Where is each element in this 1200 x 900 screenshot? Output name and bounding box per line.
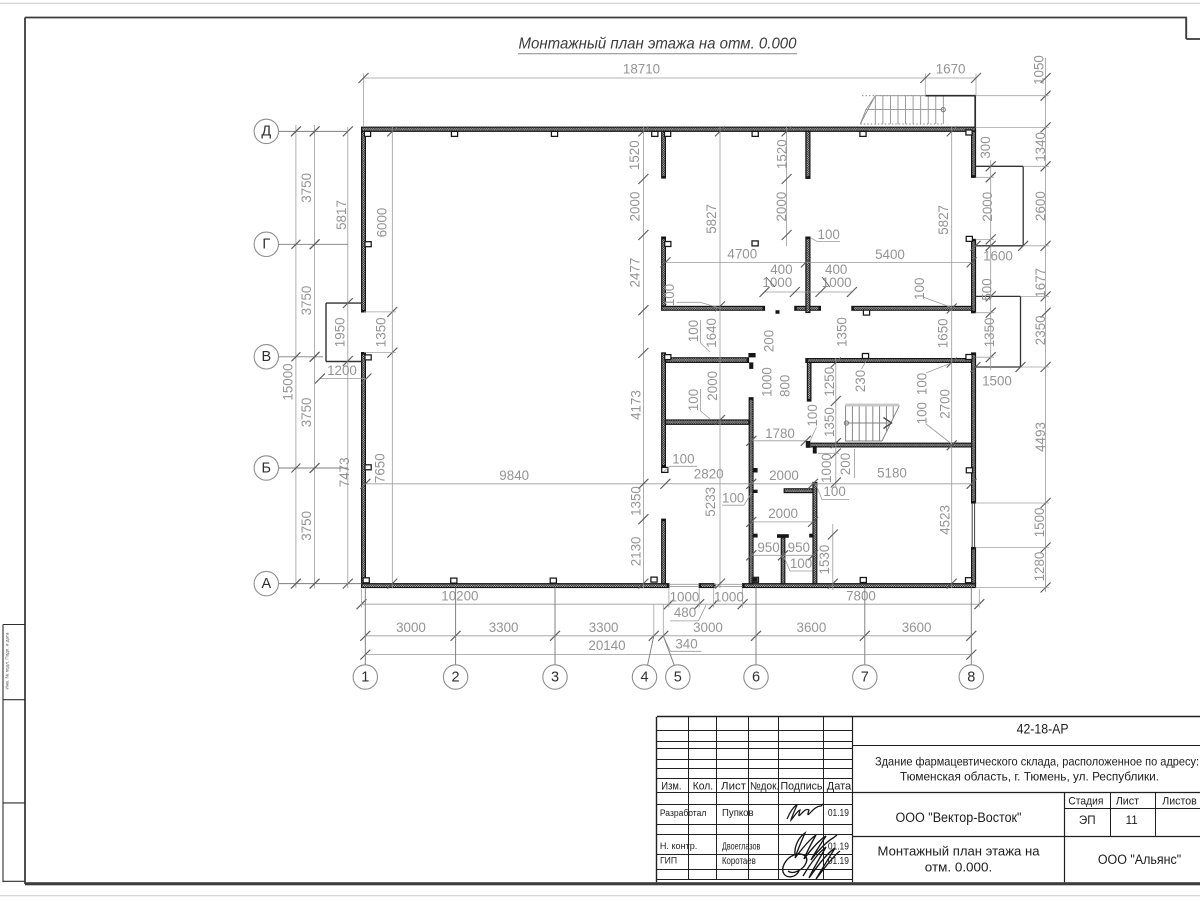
svg-text:5817: 5817 — [334, 200, 349, 230]
svg-text:3750: 3750 — [299, 511, 314, 541]
svg-text:01.19: 01.19 — [828, 856, 849, 867]
svg-text:100: 100 — [915, 373, 930, 395]
svg-text:42-18-АР: 42-18-АР — [1017, 722, 1069, 737]
svg-text:3750: 3750 — [299, 286, 314, 316]
svg-text:5827: 5827 — [704, 204, 719, 234]
svg-text:4493: 4493 — [1033, 422, 1048, 452]
svg-text:3300: 3300 — [589, 620, 619, 635]
svg-text:15000: 15000 — [280, 363, 295, 400]
svg-text:01.19: 01.19 — [828, 808, 849, 819]
svg-text:2000: 2000 — [980, 192, 995, 222]
svg-text:Подпись: Подпись — [781, 781, 823, 793]
svg-text:Листов: Листов — [1162, 795, 1197, 807]
svg-text:3600: 3600 — [902, 620, 932, 635]
svg-text:100: 100 — [790, 556, 812, 571]
svg-text:Разработал: Разработал — [660, 808, 706, 819]
svg-text:1677: 1677 — [1033, 268, 1048, 298]
svg-text:№док.: №док. — [750, 781, 779, 793]
svg-text:Коротаев: Коротаев — [722, 856, 756, 867]
svg-text:1280: 1280 — [1032, 552, 1047, 582]
svg-text:1000: 1000 — [762, 275, 792, 290]
svg-text:11: 11 — [1126, 814, 1138, 827]
svg-text:300: 300 — [978, 136, 993, 158]
svg-text:100: 100 — [686, 320, 701, 342]
svg-text:5827: 5827 — [936, 205, 951, 235]
svg-text:950: 950 — [757, 540, 779, 555]
svg-text:1640: 1640 — [704, 318, 719, 348]
svg-text:1650: 1650 — [936, 318, 951, 348]
svg-text:4173: 4173 — [628, 390, 643, 420]
svg-text:2000: 2000 — [774, 192, 789, 222]
svg-text:3600: 3600 — [797, 620, 827, 635]
svg-text:100: 100 — [662, 284, 677, 306]
svg-text:10200: 10200 — [441, 589, 478, 604]
svg-text:3000: 3000 — [396, 620, 426, 635]
svg-text:3750: 3750 — [299, 398, 314, 428]
svg-text:Лист: Лист — [1116, 795, 1139, 807]
svg-text:5180: 5180 — [877, 466, 907, 481]
svg-text:1600: 1600 — [983, 249, 1013, 264]
svg-text:Г: Г — [262, 237, 270, 253]
svg-text:1350: 1350 — [822, 407, 837, 437]
svg-text:1350: 1350 — [628, 486, 643, 516]
svg-text:100: 100 — [805, 404, 820, 426]
svg-text:Дата: Дата — [827, 781, 851, 793]
svg-text:340: 340 — [675, 636, 697, 651]
svg-text:Лист: Лист — [721, 781, 746, 793]
svg-text:4700: 4700 — [727, 246, 757, 261]
svg-text:2: 2 — [452, 669, 460, 685]
svg-text:1000: 1000 — [714, 590, 744, 605]
svg-text:2000: 2000 — [768, 506, 798, 521]
svg-text:18710: 18710 — [623, 62, 660, 77]
svg-text:7800: 7800 — [846, 589, 876, 604]
svg-text:400: 400 — [825, 262, 847, 277]
svg-text:100: 100 — [823, 484, 845, 499]
svg-text:Тюменская область, г. Тюмень,: Тюменская область, г. Тюмень, ул. Респуб… — [900, 770, 1159, 783]
svg-text:2600: 2600 — [1033, 191, 1048, 221]
svg-text:Здание фармацевтического склад: Здание фармацевтического склада, располо… — [875, 755, 1199, 768]
svg-text:1520: 1520 — [775, 139, 790, 169]
svg-text:3750: 3750 — [299, 173, 314, 203]
svg-text:6: 6 — [752, 669, 760, 685]
svg-text:1950: 1950 — [333, 317, 348, 347]
svg-text:Пупков: Пупков — [722, 808, 754, 819]
svg-text:2000: 2000 — [705, 371, 720, 401]
svg-text:7: 7 — [861, 669, 869, 685]
svg-text:ООО "Альянс": ООО "Альянс" — [1098, 852, 1182, 867]
svg-text:Инв. № подл. Подп. и дата: Инв. № подл. Подп. и дата — [5, 632, 10, 689]
svg-text:950: 950 — [788, 540, 810, 555]
svg-text:ГИП: ГИП — [660, 856, 677, 867]
svg-text:2820: 2820 — [694, 466, 724, 481]
svg-text:1530: 1530 — [817, 545, 832, 575]
svg-text:2000: 2000 — [769, 468, 799, 483]
svg-text:230: 230 — [853, 370, 868, 392]
svg-text:200: 200 — [762, 330, 777, 352]
svg-text:1: 1 — [361, 669, 369, 685]
svg-text:Монтажный план этажа на: Монтажный план этажа на — [878, 844, 1041, 859]
svg-text:1350: 1350 — [835, 317, 850, 347]
svg-text:1000: 1000 — [670, 590, 700, 605]
svg-text:1780: 1780 — [765, 426, 795, 441]
svg-text:1200: 1200 — [327, 363, 357, 378]
svg-text:1520: 1520 — [627, 140, 642, 170]
svg-text:2130: 2130 — [628, 537, 643, 567]
svg-text:1000: 1000 — [819, 453, 834, 483]
svg-text:1340: 1340 — [1033, 132, 1048, 162]
svg-text:9840: 9840 — [499, 468, 529, 483]
svg-text:1500: 1500 — [1032, 508, 1047, 538]
svg-text:Монтажный план этажа на отм. 0: Монтажный план этажа на отм. 0.000 — [519, 36, 797, 53]
svg-text:ЭП: ЭП — [1079, 814, 1096, 827]
svg-text:100: 100 — [818, 227, 840, 242]
svg-text:отм. 0.000.: отм. 0.000. — [925, 859, 993, 874]
svg-text:200: 200 — [838, 453, 853, 475]
svg-text:Стадия: Стадия — [1068, 795, 1103, 807]
svg-text:1000: 1000 — [760, 367, 775, 397]
svg-text:В: В — [261, 349, 271, 365]
svg-text:3300: 3300 — [489, 620, 519, 635]
svg-text:800: 800 — [778, 375, 793, 397]
svg-text:Д: Д — [261, 124, 271, 140]
svg-text:3: 3 — [551, 669, 559, 685]
svg-text:5: 5 — [674, 669, 682, 685]
svg-text:5233: 5233 — [703, 487, 718, 517]
svg-text:100: 100 — [912, 278, 927, 300]
svg-text:Изм.: Изм. — [661, 781, 681, 793]
svg-text:1350: 1350 — [982, 318, 997, 348]
svg-text:100: 100 — [722, 490, 744, 505]
svg-text:100: 100 — [672, 451, 694, 466]
svg-text:8: 8 — [967, 669, 975, 685]
svg-text:Двоеглазов: Двоеглазов — [722, 841, 761, 852]
svg-text:Б: Б — [262, 460, 272, 476]
svg-text:2350: 2350 — [1033, 315, 1048, 345]
svg-text:7650: 7650 — [373, 453, 388, 483]
svg-text:6000: 6000 — [375, 208, 390, 238]
svg-text:1350: 1350 — [374, 317, 389, 347]
svg-text:1500: 1500 — [982, 373, 1012, 388]
svg-text:100: 100 — [915, 402, 930, 424]
svg-text:20140: 20140 — [588, 638, 625, 653]
svg-text:480: 480 — [674, 605, 696, 620]
svg-text:4523: 4523 — [937, 505, 952, 535]
svg-text:1050: 1050 — [1032, 55, 1047, 85]
svg-text:100: 100 — [686, 389, 701, 411]
svg-text:4: 4 — [640, 669, 648, 685]
svg-text:2700: 2700 — [937, 389, 952, 419]
svg-text:2000: 2000 — [627, 192, 642, 222]
svg-text:3000: 3000 — [693, 620, 723, 635]
svg-text:5400: 5400 — [875, 247, 905, 262]
svg-text:А: А — [261, 576, 271, 592]
svg-text:1670: 1670 — [936, 62, 966, 77]
svg-text:Н. контр.: Н. контр. — [660, 841, 697, 852]
svg-text:500: 500 — [980, 278, 995, 300]
svg-text:400: 400 — [770, 262, 792, 277]
svg-text:7473: 7473 — [337, 457, 352, 487]
svg-text:Кол.: Кол. — [693, 781, 713, 793]
svg-text:ООО "Вектор-Восток": ООО "Вектор-Восток" — [896, 810, 1022, 825]
svg-text:2477: 2477 — [628, 258, 643, 288]
svg-text:1250: 1250 — [822, 367, 837, 397]
